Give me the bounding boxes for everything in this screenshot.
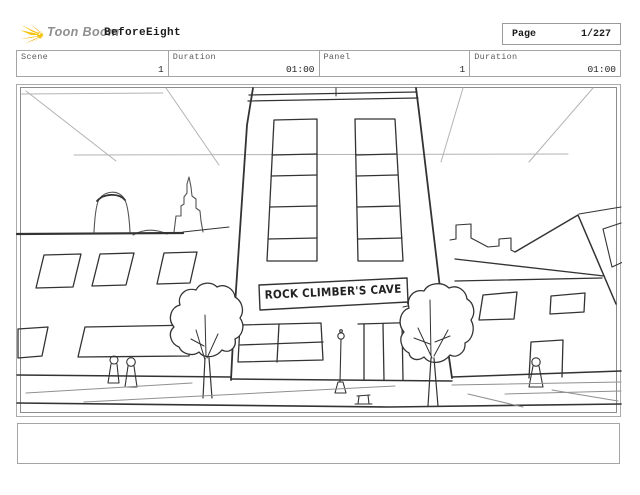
scene-duration-label: Duration [173,52,315,62]
panel-label: Panel [324,52,466,62]
street-lamp [335,330,346,393]
info-cell-scene: Scene 1 [17,51,168,76]
info-cell-panel: Panel 1 [319,51,470,76]
rock-climbers-cave-sign: ROCK CLIMBER'S CAVE [259,278,412,311]
info-cell-duration-scene: Duration 01:00 [168,51,319,76]
caption-box [17,423,620,464]
right-building [450,207,622,378]
scene-value: 1 [158,64,164,75]
scene-duration-value: 01:00 [286,64,315,75]
page-label: Page [512,29,536,40]
info-cell-duration-panel: Duration 01:00 [469,51,620,76]
info-bar: Scene 1 Duration 01:00 Panel 1 Duration … [16,50,621,77]
project-title: BeforeEight [104,27,181,39]
fire-hydrant [529,358,543,387]
page-number: 1/227 [581,29,611,40]
page-indicator: Page 1/227 [502,23,621,45]
scene-label: Scene [21,52,164,62]
tree-right [400,284,474,406]
street-lines [17,371,621,407]
panel-duration-label: Duration [474,52,616,62]
panel-value: 1 [460,64,466,75]
toonboom-logo-icon [19,24,46,44]
storyboard-export-page: { "header": { "brand": "Toon Boom", "pro… [0,0,640,495]
parking-meters [108,356,137,387]
panel-duration-value: 01:00 [587,64,616,75]
storyboard-panel-drawing: ROCK CLIMBER'S CAVE [16,84,622,417]
bench-box [355,395,372,404]
tree-left [170,283,243,398]
skyline-silhouette [94,177,203,235]
